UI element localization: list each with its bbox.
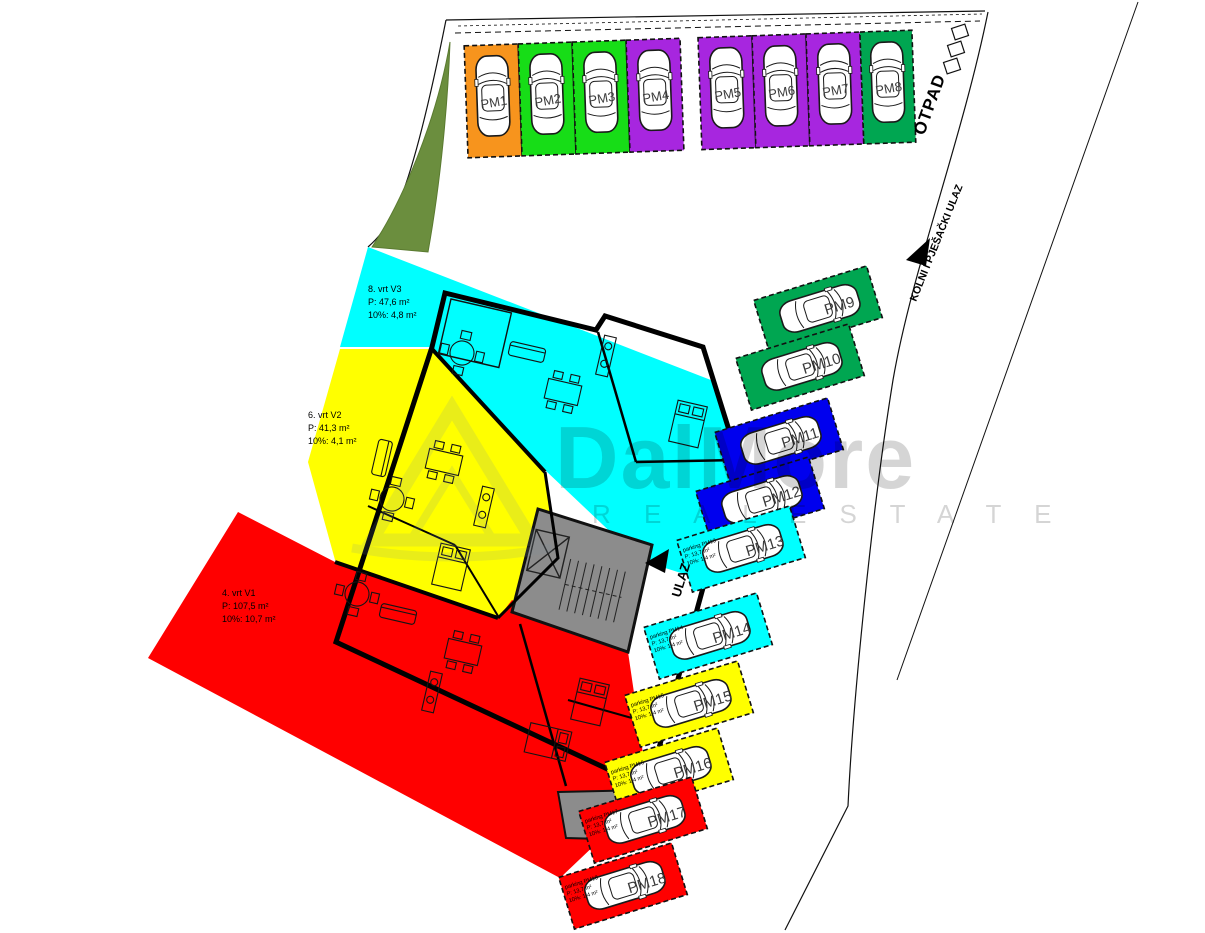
parking-stall-pm15: PM15 parking PM15 P: 13,7 m² 10%: 1,4 m² xyxy=(625,661,754,747)
otpad-label: OTPAD xyxy=(910,71,949,137)
waste-bins xyxy=(943,24,968,74)
garden-v3-line3: 10%: 4,8 m² xyxy=(368,310,417,320)
kolni-pjesacki-ulaz-label: KOLNI I PJEŠAČKI ULAZ xyxy=(907,182,966,303)
garden-v2-line3: 10%: 4,1 m² xyxy=(308,436,357,446)
garden-v1-line1: 4. vrt V1 xyxy=(222,588,256,598)
parking-stall-pm8: PM8 xyxy=(860,30,916,144)
site-plan-canvas: 8. vrt V3 P: 47,6 m² 10%: 4,8 m² 6. vrt … xyxy=(0,0,1205,933)
garden-v2-line2: P: 41,3 m² xyxy=(308,423,350,433)
parking-stall-pm14: PM14 parking PM14 P: 13,7 m² 10%: 1,4 m² xyxy=(644,593,773,679)
parking-row-top: PM1 PM2 PM3 PM4 PM5 PM6 xyxy=(464,30,916,158)
watermark-tagline: R E A L E S T A T E xyxy=(592,499,1064,529)
waste-bin-icon xyxy=(951,24,968,40)
waste-bin-icon xyxy=(943,58,960,74)
parking-stall-pm5: PM5 xyxy=(698,36,756,150)
parking-stall-pm2: PM2 xyxy=(518,42,576,156)
garden-v1-line2: P: 107,5 m² xyxy=(222,601,269,611)
site-plan-drawing: 8. vrt V3 P: 47,6 m² 10%: 4,8 m² 6. vrt … xyxy=(0,0,1205,933)
garden-v1-line3: 10%: 10,7 m² xyxy=(222,614,276,624)
parking-stall-pm7: PM7 xyxy=(806,32,864,146)
parking-stall-pm1: PM1 xyxy=(464,44,522,158)
garden-v3-line2: P: 47,6 m² xyxy=(368,297,410,307)
watermark-brand: DalMore xyxy=(555,408,916,507)
parking-stall-pm4: PM4 xyxy=(626,38,684,152)
garden-v3-line1: 8. vrt V3 xyxy=(368,284,402,294)
parking-stall-pm3: PM3 xyxy=(572,40,630,154)
grass-strip xyxy=(372,42,450,252)
parking-stall-pm6: PM6 xyxy=(752,34,810,148)
waste-bin-icon xyxy=(947,41,964,57)
garden-v2-line1: 6. vrt V2 xyxy=(308,410,342,420)
